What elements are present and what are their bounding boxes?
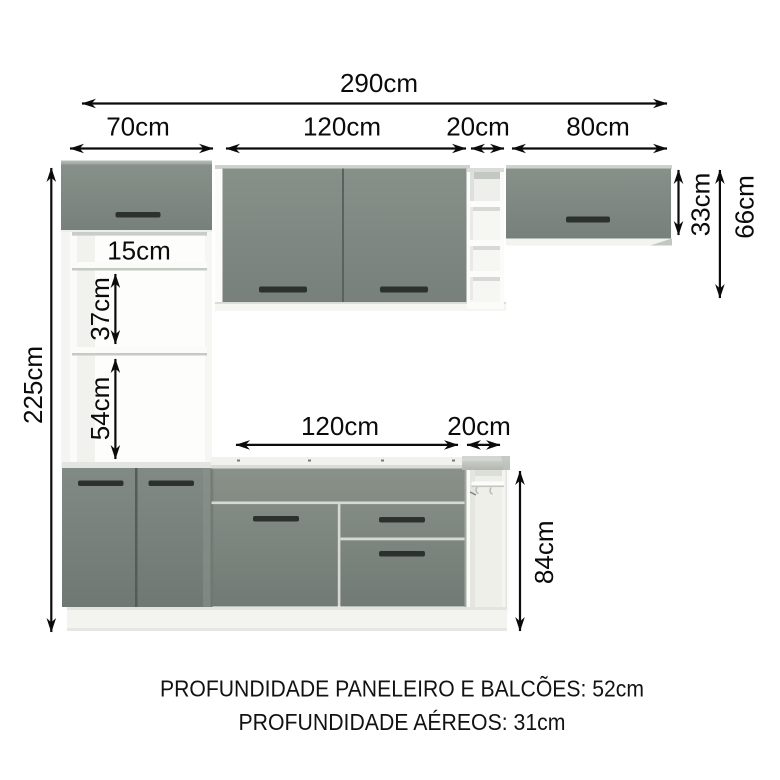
svg-text:37cm: 37cm [85, 277, 115, 341]
svg-text:PROFUNDIDADE AÉREOS: 31cm: PROFUNDIDADE AÉREOS: 31cm [239, 709, 566, 735]
svg-text:70cm: 70cm [106, 112, 170, 142]
svg-text:PROFUNDIDADE PANELEIRO E BALCÕ: PROFUNDIDADE PANELEIRO E BALCÕES: 52cm [160, 675, 644, 702]
svg-text:66cm: 66cm [730, 175, 760, 239]
svg-text:120cm: 120cm [301, 411, 379, 441]
svg-text:33cm: 33cm [686, 173, 716, 237]
svg-text:80cm: 80cm [566, 112, 630, 142]
svg-text:20cm: 20cm [447, 411, 511, 441]
svg-text:20cm: 20cm [446, 112, 510, 142]
svg-text:15cm: 15cm [107, 236, 171, 266]
svg-text:290cm: 290cm [340, 68, 418, 98]
svg-text:84cm: 84cm [529, 521, 559, 585]
svg-text:120cm: 120cm [303, 112, 381, 142]
svg-text:54cm: 54cm [85, 377, 115, 441]
svg-text:225cm: 225cm [18, 346, 48, 424]
